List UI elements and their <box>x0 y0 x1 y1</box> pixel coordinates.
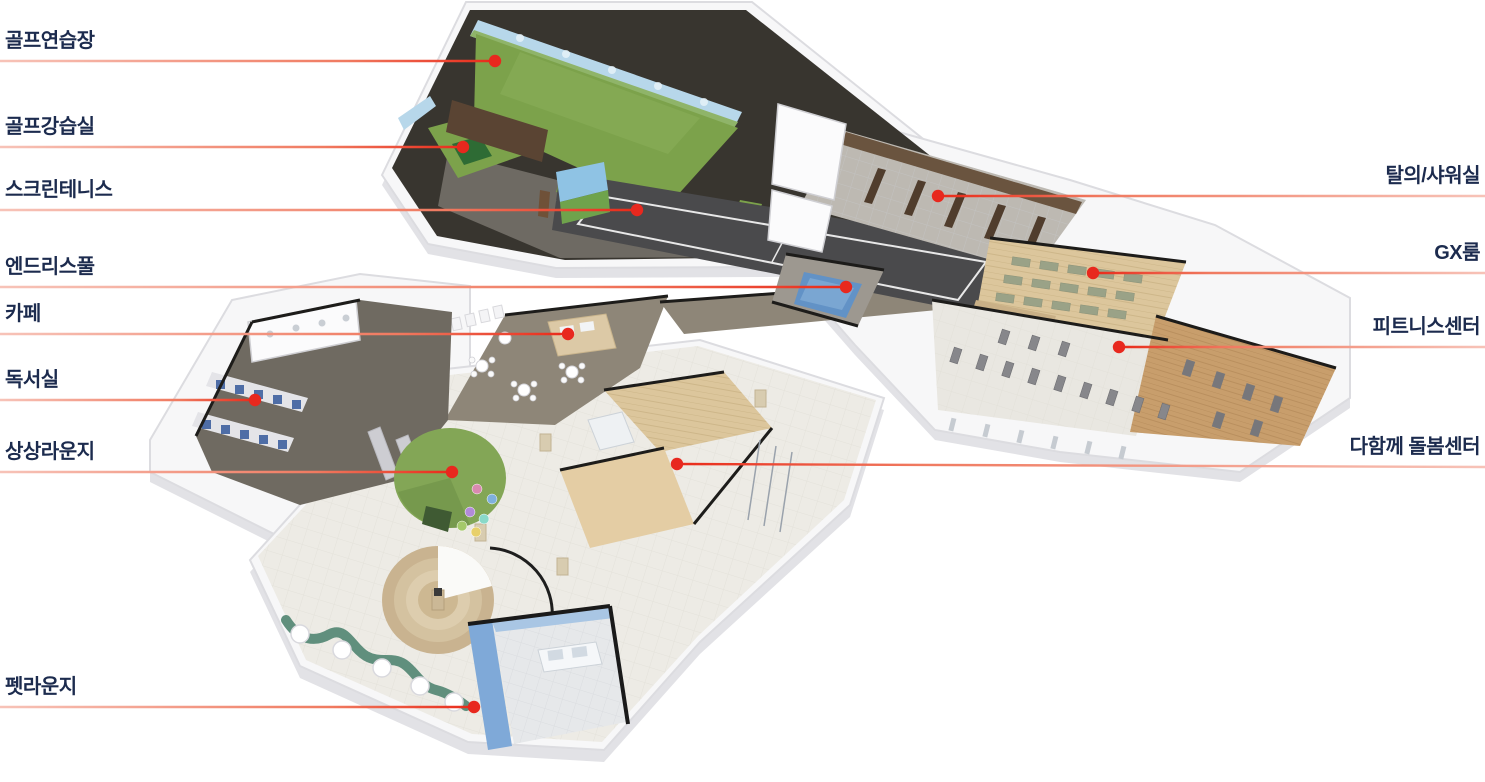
room-label-screen-tennis: 스크린테니스 <box>5 178 112 202</box>
room-label-gx-room: GX룸 <box>1434 241 1480 265</box>
floorplan-page: 골프연습장골프강습실스크린테니스엔드리스풀카페독서실상상라운지펫라운지탈의/샤워… <box>0 0 1485 782</box>
room-label-fitness-center: 피트니스센터 <box>1373 315 1480 339</box>
room-label-pet-lounge: 펫라운지 <box>5 675 77 699</box>
room-label-golf-practice-range: 골프연습장 <box>5 29 95 53</box>
room-label-together-care-center: 다함께 돌봄센터 <box>1350 435 1480 459</box>
room-label-imagination-lounge: 상상라운지 <box>5 440 95 464</box>
floorplan-illustration <box>0 0 1485 782</box>
room-label-golf-lesson-room: 골프강습실 <box>5 115 95 139</box>
room-label-locker-shower-room: 탈의/샤워실 <box>1385 164 1480 188</box>
room-label-cafe: 카페 <box>5 302 41 326</box>
room-label-endless-pool: 엔드리스풀 <box>5 255 95 279</box>
room-label-reading-room: 독서실 <box>5 368 59 392</box>
